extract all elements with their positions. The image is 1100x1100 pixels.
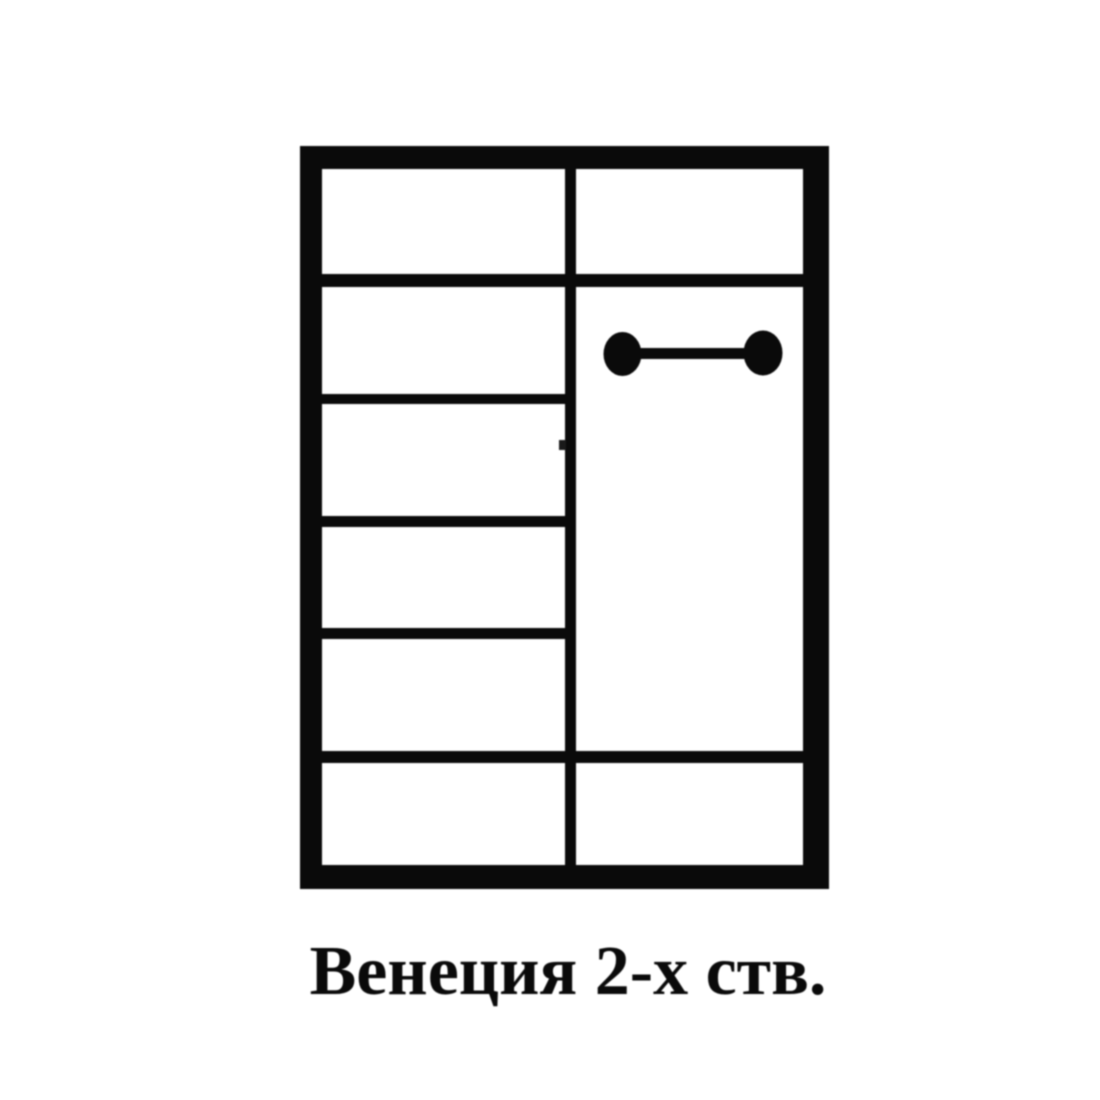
- svg-text:Венеция 2-х ств.: Венеция 2-х ств.: [310, 933, 827, 1010]
